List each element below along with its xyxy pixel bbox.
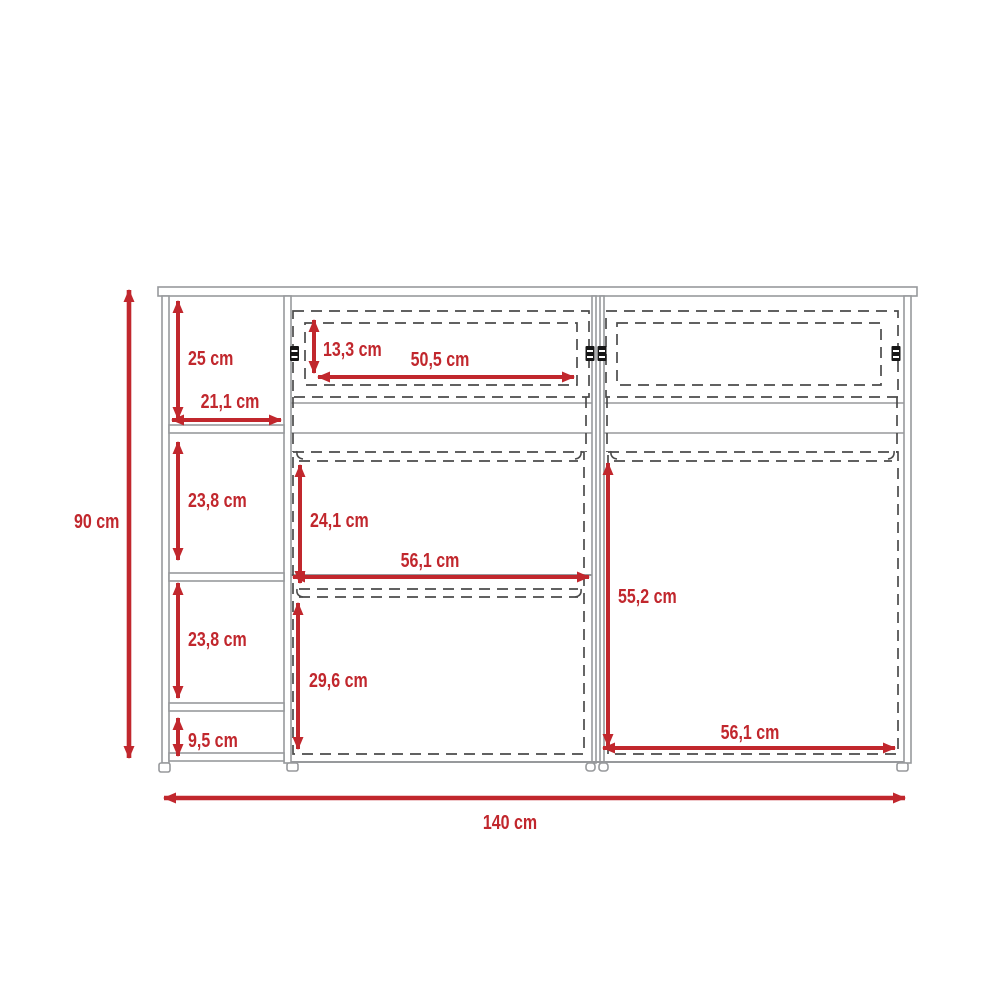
dim-label-shelf-lower: 23,8 cm — [188, 628, 247, 650]
dim-label-right-width: 56,1 cm — [721, 721, 780, 743]
top-door-right-outline — [606, 311, 898, 397]
dim-label-shelf-base: 9,5 cm — [188, 729, 238, 751]
foot-icon — [599, 763, 608, 771]
dim-label-top-door-height: 13,3 cm — [323, 338, 382, 360]
shelf-pin-icon — [297, 589, 303, 597]
shelf-pin-icon — [575, 451, 581, 459]
dim-label-shelf-top: 25 cm — [188, 347, 233, 369]
dim-label-shelf-depth: 21,1 cm — [201, 390, 260, 412]
dimensions: 90 cm 140 cm 25 cm 21,1 cm 23,8 cm 23,8 … — [74, 290, 905, 833]
dim-overall-width: 140 cm — [164, 798, 905, 833]
dim-label-shelf-middle: 23,8 cm — [188, 489, 247, 511]
dim-shelf-base: 9,5 cm — [178, 718, 238, 756]
dim-label-left-lower: 29,6 cm — [309, 669, 368, 691]
left-shelf-bottom-board — [169, 753, 284, 761]
dim-label-left-width: 56,1 cm — [401, 549, 460, 571]
hinge-icon — [586, 346, 595, 361]
dim-left-compartment-width: 56,1 cm — [293, 549, 589, 577]
foot-icon — [159, 763, 170, 772]
left-shelf-board-3 — [169, 703, 284, 711]
cabinet-structure — [158, 287, 917, 772]
center-divider-right — [600, 296, 604, 763]
dim-shelf-middle-section: 23,8 cm — [178, 442, 247, 560]
dim-label-top-door-width: 50,5 cm — [411, 348, 470, 370]
cabinet-right-panel — [904, 296, 911, 763]
left-shelf-side-panel — [162, 296, 169, 763]
foot-icon — [287, 763, 298, 771]
left-shelf-board-1 — [169, 425, 284, 433]
dim-shelf-depth: 21,1 cm — [172, 390, 281, 420]
dim-label-overall-width: 140 cm — [483, 811, 537, 833]
dim-label-left-upper: 24,1 cm — [310, 509, 369, 531]
dim-left-compartment-lower: 29,6 cm — [298, 603, 368, 749]
hinge-icon — [892, 346, 901, 361]
dim-left-compartment-upper: 24,1 cm — [300, 465, 369, 583]
dim-shelf-lower-section: 23,8 cm — [178, 583, 247, 698]
foot-icon — [897, 763, 908, 771]
dim-top-door-height: 13,3 cm — [314, 320, 382, 373]
tabletop — [158, 287, 917, 296]
diagram-canvas: 90 cm 140 cm 25 cm 21,1 cm 23,8 cm 23,8 … — [0, 0, 1000, 1000]
left-shelf-board-2 — [169, 573, 284, 581]
hinge-icon — [290, 346, 299, 361]
hinge-icon — [598, 346, 607, 361]
dim-right-compartment-width: 56,1 cm — [603, 721, 895, 748]
top-door-right-inner-outline — [617, 323, 881, 385]
dim-label-overall-height: 90 cm — [74, 510, 119, 532]
lower-door-left-outline — [293, 452, 584, 754]
foot-icon — [586, 763, 595, 771]
furniture-dimension-diagram: 90 cm 140 cm 25 cm 21,1 cm 23,8 cm 23,8 … — [0, 0, 1000, 1000]
dim-label-right-height: 55,2 cm — [618, 585, 677, 607]
shelf-pin-icon — [575, 589, 581, 597]
dim-right-compartment-height: 55,2 cm — [608, 463, 677, 746]
dim-overall-height: 90 cm — [74, 290, 129, 758]
center-divider-left — [592, 296, 596, 763]
cabinet-left-panel — [284, 296, 291, 763]
